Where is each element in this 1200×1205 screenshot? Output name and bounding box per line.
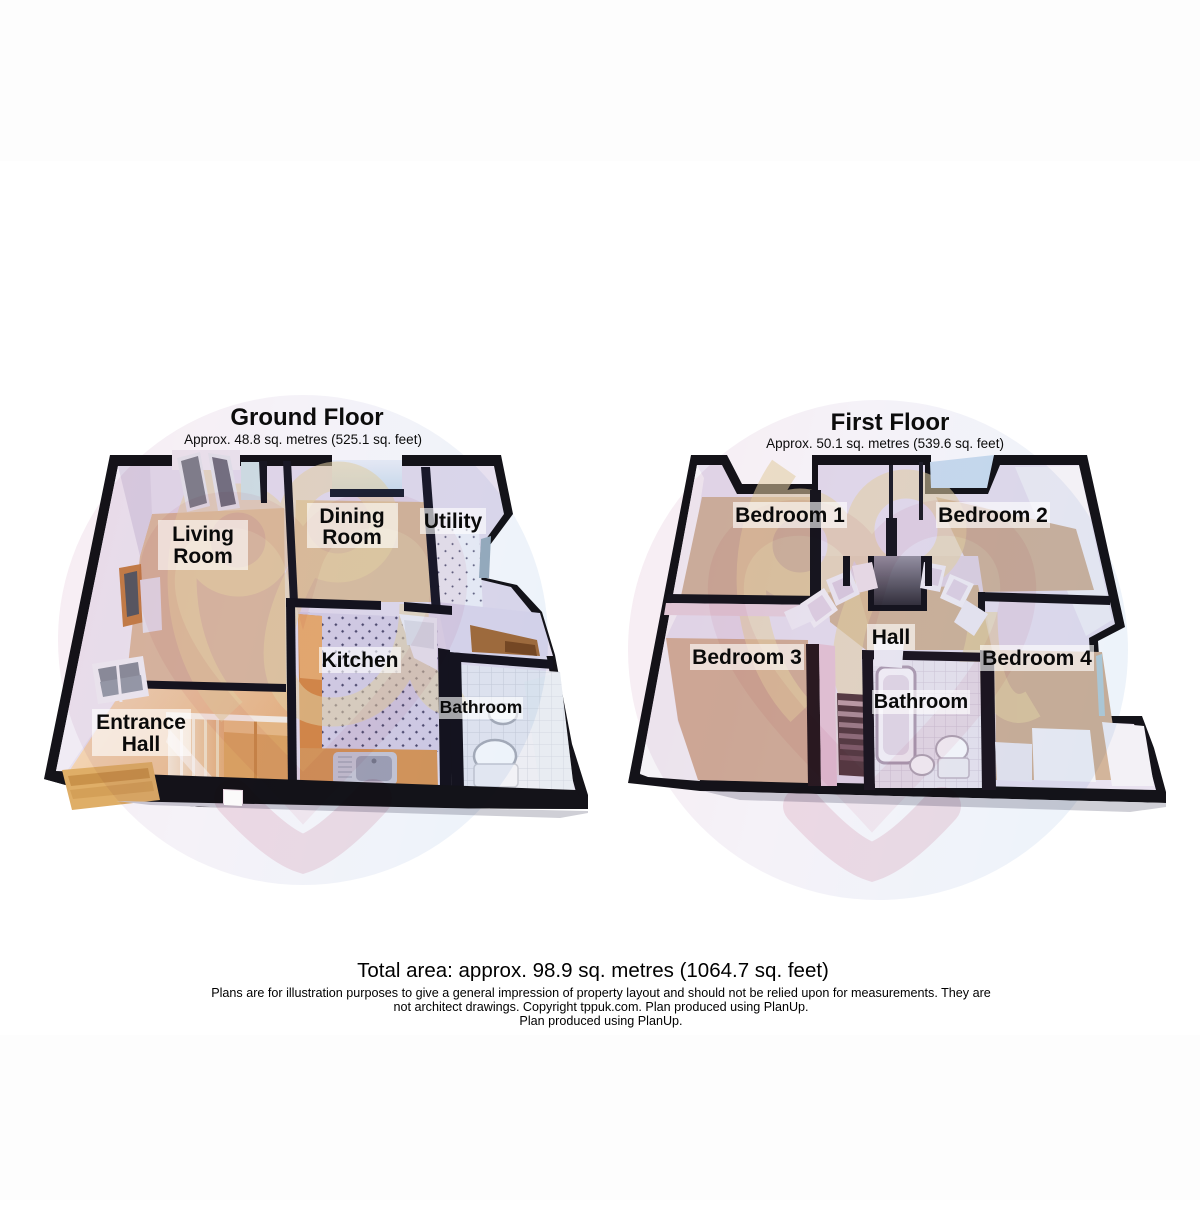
- svg-text:Hall: Hall: [872, 626, 911, 649]
- svg-text:Bedroom 3: Bedroom 3: [692, 646, 802, 669]
- svg-text:Living: Living: [172, 523, 234, 546]
- svg-text:Dining: Dining: [319, 505, 384, 528]
- svg-text:First Floor: First Floor: [831, 409, 950, 436]
- svg-text:Bathroom: Bathroom: [440, 697, 523, 717]
- svg-text:Total area: approx. 98.9 sq. m: Total area: approx. 98.9 sq. metres (106…: [357, 959, 829, 982]
- svg-text:Bedroom 2: Bedroom 2: [938, 504, 1048, 527]
- svg-text:Bedroom 4: Bedroom 4: [982, 647, 1092, 670]
- svg-text:Bathroom: Bathroom: [874, 691, 968, 713]
- svg-text:Hall: Hall: [122, 733, 161, 756]
- svg-text:Approx. 50.1 sq. metres (539.6: Approx. 50.1 sq. metres (539.6 sq. feet): [766, 436, 1004, 451]
- svg-text:Utility: Utility: [424, 510, 483, 533]
- svg-text:not architect drawings. Copyri: not architect drawings. Copyright tppuk.…: [393, 1000, 808, 1014]
- svg-text:Entrance: Entrance: [96, 711, 186, 734]
- svg-text:Plans are for illustration pur: Plans are for illustration purposes to g…: [211, 986, 991, 1000]
- svg-text:Ground Floor: Ground Floor: [230, 404, 383, 431]
- svg-text:Room: Room: [173, 545, 233, 568]
- svg-text:Approx. 48.8 sq. metres (525.1: Approx. 48.8 sq. metres (525.1 sq. feet): [184, 432, 422, 447]
- svg-text:Kitchen: Kitchen: [321, 649, 398, 672]
- svg-text:Plan produced using PlanUp.: Plan produced using PlanUp.: [519, 1014, 682, 1028]
- svg-text:Bedroom 1: Bedroom 1: [735, 504, 845, 527]
- svg-text:Room: Room: [322, 526, 382, 549]
